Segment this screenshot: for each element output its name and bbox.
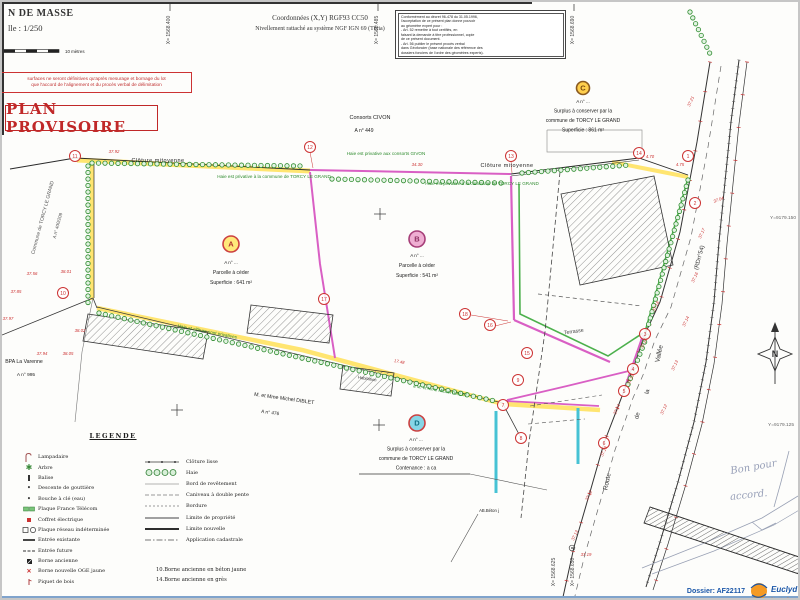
parcel-text-C: commune de TORCY LE GRAND (546, 118, 621, 124)
lim_nouv-icon (144, 526, 186, 532)
legend-column-symbols: Lampadaire✱ArbreBalise•Descente de goutt… (20, 452, 109, 587)
hedge-symbol (490, 398, 494, 402)
hedge-symbol (665, 253, 669, 257)
parcel-letter-D: D (414, 419, 420, 428)
plan-line (528, 419, 585, 424)
boundary-point-number: 7 (502, 403, 505, 409)
legend-item-label: Balise (38, 475, 53, 481)
legend-item: Entrée existante (20, 535, 109, 545)
handwritten-note: Bon pour (729, 458, 779, 477)
legend-item: Caniveau à double pente (144, 490, 249, 501)
boundary-point-number: 4 (632, 367, 635, 373)
legend-item: Plaque réseau indéterminée (20, 525, 109, 535)
hedge-symbol (681, 197, 685, 201)
boundary-point-number: 5 (623, 389, 626, 395)
plan-label: A n° 400/209 (52, 212, 64, 239)
boundary-point-number: 15 (524, 351, 530, 357)
hedge-symbol (539, 169, 543, 173)
hedge-symbol (86, 183, 90, 187)
hedge-symbol (109, 161, 113, 165)
boundary-point-number: 10 (60, 291, 66, 297)
parcel-letter-C: C (580, 84, 586, 93)
boundary-point-number: 11 (72, 154, 77, 160)
hedge-symbol (274, 350, 278, 354)
hedge-symbol (90, 161, 94, 165)
legal-notice-box: Conformément au décret 96-478 du 31.05.1… (395, 10, 566, 59)
hedge-symbol (395, 377, 399, 381)
plan-label: Haie est privative à la commune de TORCY… (217, 174, 331, 179)
dot-icon: • (20, 484, 38, 492)
tick-mark (695, 407, 698, 408)
hedge-symbol (672, 228, 676, 232)
hedge-symbol (696, 27, 700, 31)
hedge-symbol (230, 340, 234, 344)
hedge-symbol (213, 163, 217, 167)
hedge-symbol (664, 259, 668, 263)
hedge-symbol (249, 345, 253, 349)
spot-elevation: 37.85 (11, 289, 22, 294)
coord-line1: Coordonnées (X,Y) RGF93 CC50 (230, 14, 410, 22)
hedge-symbol (122, 316, 126, 320)
hedge-symbol (116, 161, 120, 165)
north-arrow-head (771, 322, 779, 332)
hedge-symbol (382, 178, 386, 182)
parcel-text-B: Parcelle à céder (399, 263, 435, 269)
parcel-text-A: Parcelle à céder (213, 270, 249, 276)
plan-label: Consorts CIVON (350, 115, 391, 121)
hedge-symbol (198, 333, 202, 337)
hedge-symbol (707, 51, 711, 55)
plan-label: AB.Béton j (479, 508, 499, 513)
dossier-reference: Dossier: AF22117 (687, 588, 745, 595)
hedge-symbol (674, 222, 678, 226)
hedge-symbol (306, 357, 310, 361)
parcel-text-C: Surplus à conserver par la (554, 109, 613, 115)
hedge-symbol (291, 164, 295, 168)
hedge-symbol (211, 336, 215, 340)
plan-label: M. et Mme Michel DIBLET (254, 392, 316, 406)
tick-mark (704, 366, 707, 367)
hedge-symbol (135, 319, 139, 323)
hedge-symbol (478, 395, 482, 399)
hedge-symbol (86, 190, 90, 194)
plan-line (774, 451, 789, 507)
tick-mark (708, 62, 712, 63)
hedge-symbol (97, 311, 101, 315)
scalebar-segment (48, 50, 59, 53)
coordinate-system-note: Coordonnées (X,Y) RGF93 CC50 Nivellement… (230, 14, 410, 32)
hedge-symbol (86, 216, 90, 220)
boundary-point-number: 17 (321, 297, 327, 303)
coord-line2: Nivellement rattaché au système NGF IGN … (230, 26, 410, 32)
borne_anc-icon (20, 558, 38, 565)
hedge-symbol (363, 370, 367, 374)
hedge-symbol (103, 312, 107, 316)
legend-item-label: Piquet de bois (38, 579, 74, 585)
caniveau-icon (144, 492, 186, 498)
tick-mark (707, 389, 711, 390)
hedge-symbol (265, 163, 269, 167)
lamp-icon (20, 452, 38, 463)
hedge-symbol (160, 325, 164, 329)
spot-elevation: 38.01 (61, 269, 72, 274)
borne_nouv-icon: ✕ (20, 568, 38, 575)
spot-elevation: 37.12 (584, 489, 593, 501)
hedge-symbol (236, 342, 240, 346)
legend-item: Lampadaire (20, 452, 109, 462)
legend-item-label: Arbre (38, 465, 53, 471)
tick-mark (700, 422, 704, 423)
hedge-symbol (611, 164, 615, 168)
plan-line (470, 474, 547, 490)
tick-mark (693, 421, 696, 422)
legend-item: Clôture lisse (144, 456, 249, 467)
hedge-symbol (239, 163, 243, 167)
spot-elevation: 37.21 (686, 95, 695, 107)
boundary-point-number: 18 (462, 312, 468, 318)
hedge-symbol (699, 33, 703, 37)
legend-item-label: Plaque réseau indéterminée (38, 527, 109, 533)
plan-line (511, 176, 514, 320)
boundary-point-number: 13 (508, 154, 514, 160)
parcel-text-D: Contenance : a ca (396, 466, 437, 472)
boundary-point-number: 12 (307, 145, 313, 151)
spot-elevation: 37.18 (651, 300, 660, 312)
handwritten-note: accord. (729, 488, 767, 503)
plan-label: A n° 995 (17, 372, 36, 378)
hedge-symbol (336, 177, 340, 181)
legend-item-label: Entrée future (38, 548, 72, 554)
hedge-symbol (207, 162, 211, 166)
hedge-symbol (246, 163, 250, 167)
plan-label: A n° 449 (355, 128, 374, 134)
hedge-symbol (686, 178, 690, 182)
scalebar-segment (4, 50, 15, 53)
hedge-symbol (226, 163, 230, 167)
hedge-symbol (129, 318, 133, 322)
plan-line (451, 514, 478, 562)
hedge-symbol (638, 352, 642, 356)
legend-item-label: Coffret électrique (38, 517, 83, 523)
legend-item: Borne ancienne (20, 556, 109, 566)
hedge-symbol (691, 16, 695, 20)
hedge-symbol (205, 335, 209, 339)
parcel-text-A: A n° ... (224, 260, 238, 265)
tick-mark (692, 453, 696, 454)
hedge-symbol (116, 315, 120, 319)
legend-item-label: Limite de propriété (186, 515, 235, 521)
hedge-symbol (351, 367, 355, 371)
plan-line (495, 322, 511, 326)
legend-item: Bord de revêtement (144, 478, 249, 489)
hedge-symbol (677, 209, 681, 213)
hedge-symbol (389, 376, 393, 380)
boundary-point-number: 16 (487, 323, 493, 329)
hedge-symbol (86, 164, 90, 168)
hedge-symbol (194, 162, 198, 166)
hedge-symbol (86, 177, 90, 181)
hedge-symbol (349, 177, 353, 181)
hedge-symbol (86, 261, 90, 265)
spot-elevation: 37.12 (659, 403, 668, 415)
plan-line (521, 172, 560, 518)
plan-label: Y=9179.150 (770, 215, 796, 221)
tick-mark (745, 62, 749, 63)
legend-item: Coffret électrique (20, 514, 109, 524)
spot-elevation: 4.70 (646, 154, 655, 159)
hedge-symbol (401, 178, 405, 182)
legend-item-label: Bord de revêtement (186, 481, 237, 487)
tick-mark (565, 580, 569, 581)
legend-notes: 10.Borne ancienne en béton jaune14.Borne… (156, 566, 246, 585)
hedge-symbol (179, 329, 183, 333)
hedge-symbol (252, 163, 256, 167)
legend-item-label: Plaque France Télécom (38, 506, 97, 512)
plan-title: N DE MASSE lle : 1/250 (8, 8, 74, 33)
legend-item-label: Lampadaire (38, 454, 68, 460)
hedge-symbol (356, 177, 360, 181)
hedge-symbol (233, 163, 237, 167)
plan-label: Clôture mitoyenne (480, 163, 533, 169)
legend-item-label: Borne ancienne (38, 558, 78, 564)
hedge-symbol (268, 349, 272, 353)
hedge-symbol (243, 343, 247, 347)
hedge-symbol (559, 168, 563, 172)
notice-line: dossiers fonciers de l'ordre des géomètr… (401, 51, 560, 56)
hedge-symbol (552, 168, 556, 172)
plan-label: A n° 476 (261, 409, 280, 418)
hedge-symbol (344, 366, 348, 370)
hedge-symbol (679, 203, 683, 207)
parcel-text-C: A n° ... (576, 99, 590, 104)
bord-icon (144, 481, 186, 487)
hedge-symbol (408, 179, 412, 183)
hedge-symbol (278, 163, 282, 167)
hedge-symbol (255, 346, 259, 350)
hedge-symbol (86, 281, 90, 285)
hedge-symbol (705, 45, 709, 49)
hedge-symbol (86, 274, 90, 278)
hatched-building (247, 305, 333, 343)
plan-line (653, 62, 747, 590)
spot-elevation: 34.30 (412, 162, 423, 167)
tick-mark (702, 373, 705, 374)
hedge-symbol (167, 326, 171, 330)
piquet-icon (20, 578, 38, 586)
scale-text: lle : 1/250 (8, 23, 74, 33)
boundary-point-number: 14 (636, 151, 642, 157)
hedge-symbol (362, 178, 366, 182)
hedge-symbol (655, 291, 659, 295)
hedge-symbol (154, 323, 158, 327)
hedge-symbol (325, 362, 329, 366)
legend-item: Limite de propriété (144, 512, 249, 523)
hedge-symbol (338, 364, 342, 368)
hedge-symbol (220, 163, 224, 167)
hedge-symbol (395, 178, 399, 182)
parcel-text-D: commune de TORCY LE GRAND (379, 456, 454, 462)
legend-item-label: Limite nouvelle (186, 526, 225, 532)
parcel-text-C: Superficie : 861 m² (562, 128, 604, 134)
disclaimer-line2: que l'accord de l'alignement et du procè… (5, 82, 188, 88)
spot-elevation: 37.14 (612, 403, 621, 415)
hedge-symbol (693, 22, 697, 26)
hedge-symbol (262, 347, 266, 351)
hedge-symbol (272, 163, 276, 167)
hedge-symbol (669, 241, 673, 245)
spot-elevation: 38.05 (63, 351, 74, 356)
legend-item: Application cadastrale (144, 534, 249, 545)
legend-item-label: Clôture lisse (186, 459, 218, 465)
hedge-symbol (370, 371, 374, 375)
hedge-symbol (658, 278, 662, 282)
spot-elevation: 37.16 (690, 271, 699, 283)
hedge-symbol (617, 164, 621, 168)
plan-label: X= 1568.625 (551, 558, 557, 587)
north-letter: N (772, 349, 779, 359)
boundary-point-number: 2 (694, 201, 697, 207)
plan-line (538, 294, 642, 306)
hedge-symbol (86, 203, 90, 207)
plan-line (310, 170, 511, 174)
legend-column-linetypes: Clôture lisseHaieBord de revêtementCaniv… (144, 456, 249, 546)
provisional-disclaimer-box: surfaces ne seront définitives qu'après … (0, 72, 192, 93)
tick-mark (717, 324, 721, 325)
hedge-symbol (484, 397, 488, 401)
hedge-symbol (186, 331, 190, 335)
spot-elevation: 37.17 (697, 227, 706, 239)
hedge-symbol (598, 165, 602, 169)
hedge-symbol (635, 358, 639, 362)
legend-item-label: Descente de gouttière (38, 485, 94, 491)
hedge-symbol (217, 338, 221, 342)
hedge-symbol (122, 161, 126, 165)
cl_lisse-icon (144, 458, 186, 466)
plan-line (563, 62, 710, 597)
tick-mark (701, 379, 704, 380)
tick-mark (699, 386, 702, 387)
hedge-symbol (86, 294, 90, 298)
hedge-symbol (565, 167, 569, 171)
legend-item: Plaque France Télécom (20, 504, 109, 514)
hedge-symbol (578, 166, 582, 170)
hedge-symbol (294, 355, 298, 359)
parcel-text-B: Superficie : 541 m² (396, 273, 438, 279)
hedge-symbol (382, 374, 386, 378)
hedge-symbol (313, 359, 317, 363)
hedge-symbol (281, 352, 285, 356)
hedge-symbol (702, 39, 706, 43)
tick-mark (694, 414, 697, 415)
hedge-symbol (141, 321, 145, 325)
legend-item-label: Haie (186, 470, 198, 476)
boundary-point-number: 8 (520, 436, 523, 442)
entree_ex-icon (20, 537, 38, 543)
plan-label: Haie est privative à la commune de TORCY… (425, 181, 539, 186)
hedge-symbol (86, 268, 90, 272)
hedge-symbol (682, 190, 686, 194)
hedge-symbol (657, 284, 661, 288)
hedge-symbol (688, 10, 692, 14)
plan-provisoire-stamp: PLAN PROVISOIRE (5, 105, 158, 131)
hedge-symbol (103, 161, 107, 165)
tick-mark (697, 400, 700, 401)
hedge-symbol (591, 166, 595, 170)
legend-item-label: Bouche à clé (eau) (38, 496, 85, 502)
plan-line (646, 60, 739, 587)
spot-elevation: 37.97 (3, 316, 14, 321)
hedge-symbol (86, 287, 90, 291)
parcel-text-D: A n° ... (409, 437, 423, 442)
bordure-icon (144, 503, 186, 509)
legend-item-label: Caniveau à double pente (186, 492, 249, 498)
legend-item: Bordure (144, 501, 249, 512)
plan-label: X= 1568.400 (166, 16, 172, 45)
legend-item: •Bouche à clé (eau) (20, 494, 109, 504)
hedge-symbol (86, 222, 90, 226)
parcel-letter-A: A (228, 240, 234, 249)
hedge-symbol (676, 215, 680, 219)
hatched-building (644, 507, 800, 575)
tick-mark (682, 209, 686, 210)
spot-elevation: 17.48 (394, 358, 406, 365)
spot-elevation: 4.75 (676, 162, 685, 167)
legend-item: Limite nouvelle (144, 523, 249, 534)
hedge-symbol (298, 164, 302, 168)
boundary-point-number: 9 (517, 378, 520, 384)
hedge-symbol (375, 178, 379, 182)
legal-notice-text: Conformément au décret 96-478 du 31.05.1… (398, 13, 564, 57)
balise-icon (20, 475, 38, 481)
spot-elevation: 37.19 (581, 552, 592, 557)
hedge-symbol (96, 161, 100, 165)
hedge-symbol (192, 332, 196, 336)
hedge-symbol (357, 369, 361, 373)
plan-line (507, 370, 633, 400)
hedge-symbol (86, 235, 90, 239)
legend: LEGENDE Lampadaire✱ArbreBalise•Descente … (18, 432, 328, 596)
hedge-symbol (287, 353, 291, 357)
plan-label: Terrasse (564, 328, 585, 337)
hedge-symbol (585, 166, 589, 170)
spot-elevation: 37.92 (109, 149, 120, 154)
hedge-symbol (526, 170, 530, 174)
hedge-symbol (388, 178, 392, 182)
hedge-symbol (86, 229, 90, 233)
hedge-symbol (520, 171, 524, 175)
legend-item: Balise (20, 473, 109, 483)
hedge-symbol (662, 266, 666, 270)
title-text: N DE MASSE (8, 8, 74, 19)
hedge-symbol (109, 314, 113, 318)
spot-elevation: 37.14 (681, 315, 690, 327)
tree-icon: ✱ (20, 463, 38, 472)
spot-elevation: 37.13 (670, 359, 679, 371)
hedge-symbol (86, 300, 90, 304)
hedge-symbol (369, 178, 373, 182)
plan-label: de (634, 411, 641, 419)
hedge-symbol (86, 242, 90, 246)
spot-elevation: 37.13 (570, 529, 579, 541)
tick-mark (713, 357, 717, 358)
parcel-text-D: Surplus à conserver par la (387, 447, 446, 453)
plan-label: X= 1568.690 (570, 16, 576, 45)
tick-mark (698, 121, 702, 122)
hedge-symbol (300, 356, 304, 360)
hedge-symbol (624, 163, 628, 167)
legend-item: Haie (144, 467, 249, 478)
parcel-text-A: Superficie : 641 m² (210, 280, 252, 286)
